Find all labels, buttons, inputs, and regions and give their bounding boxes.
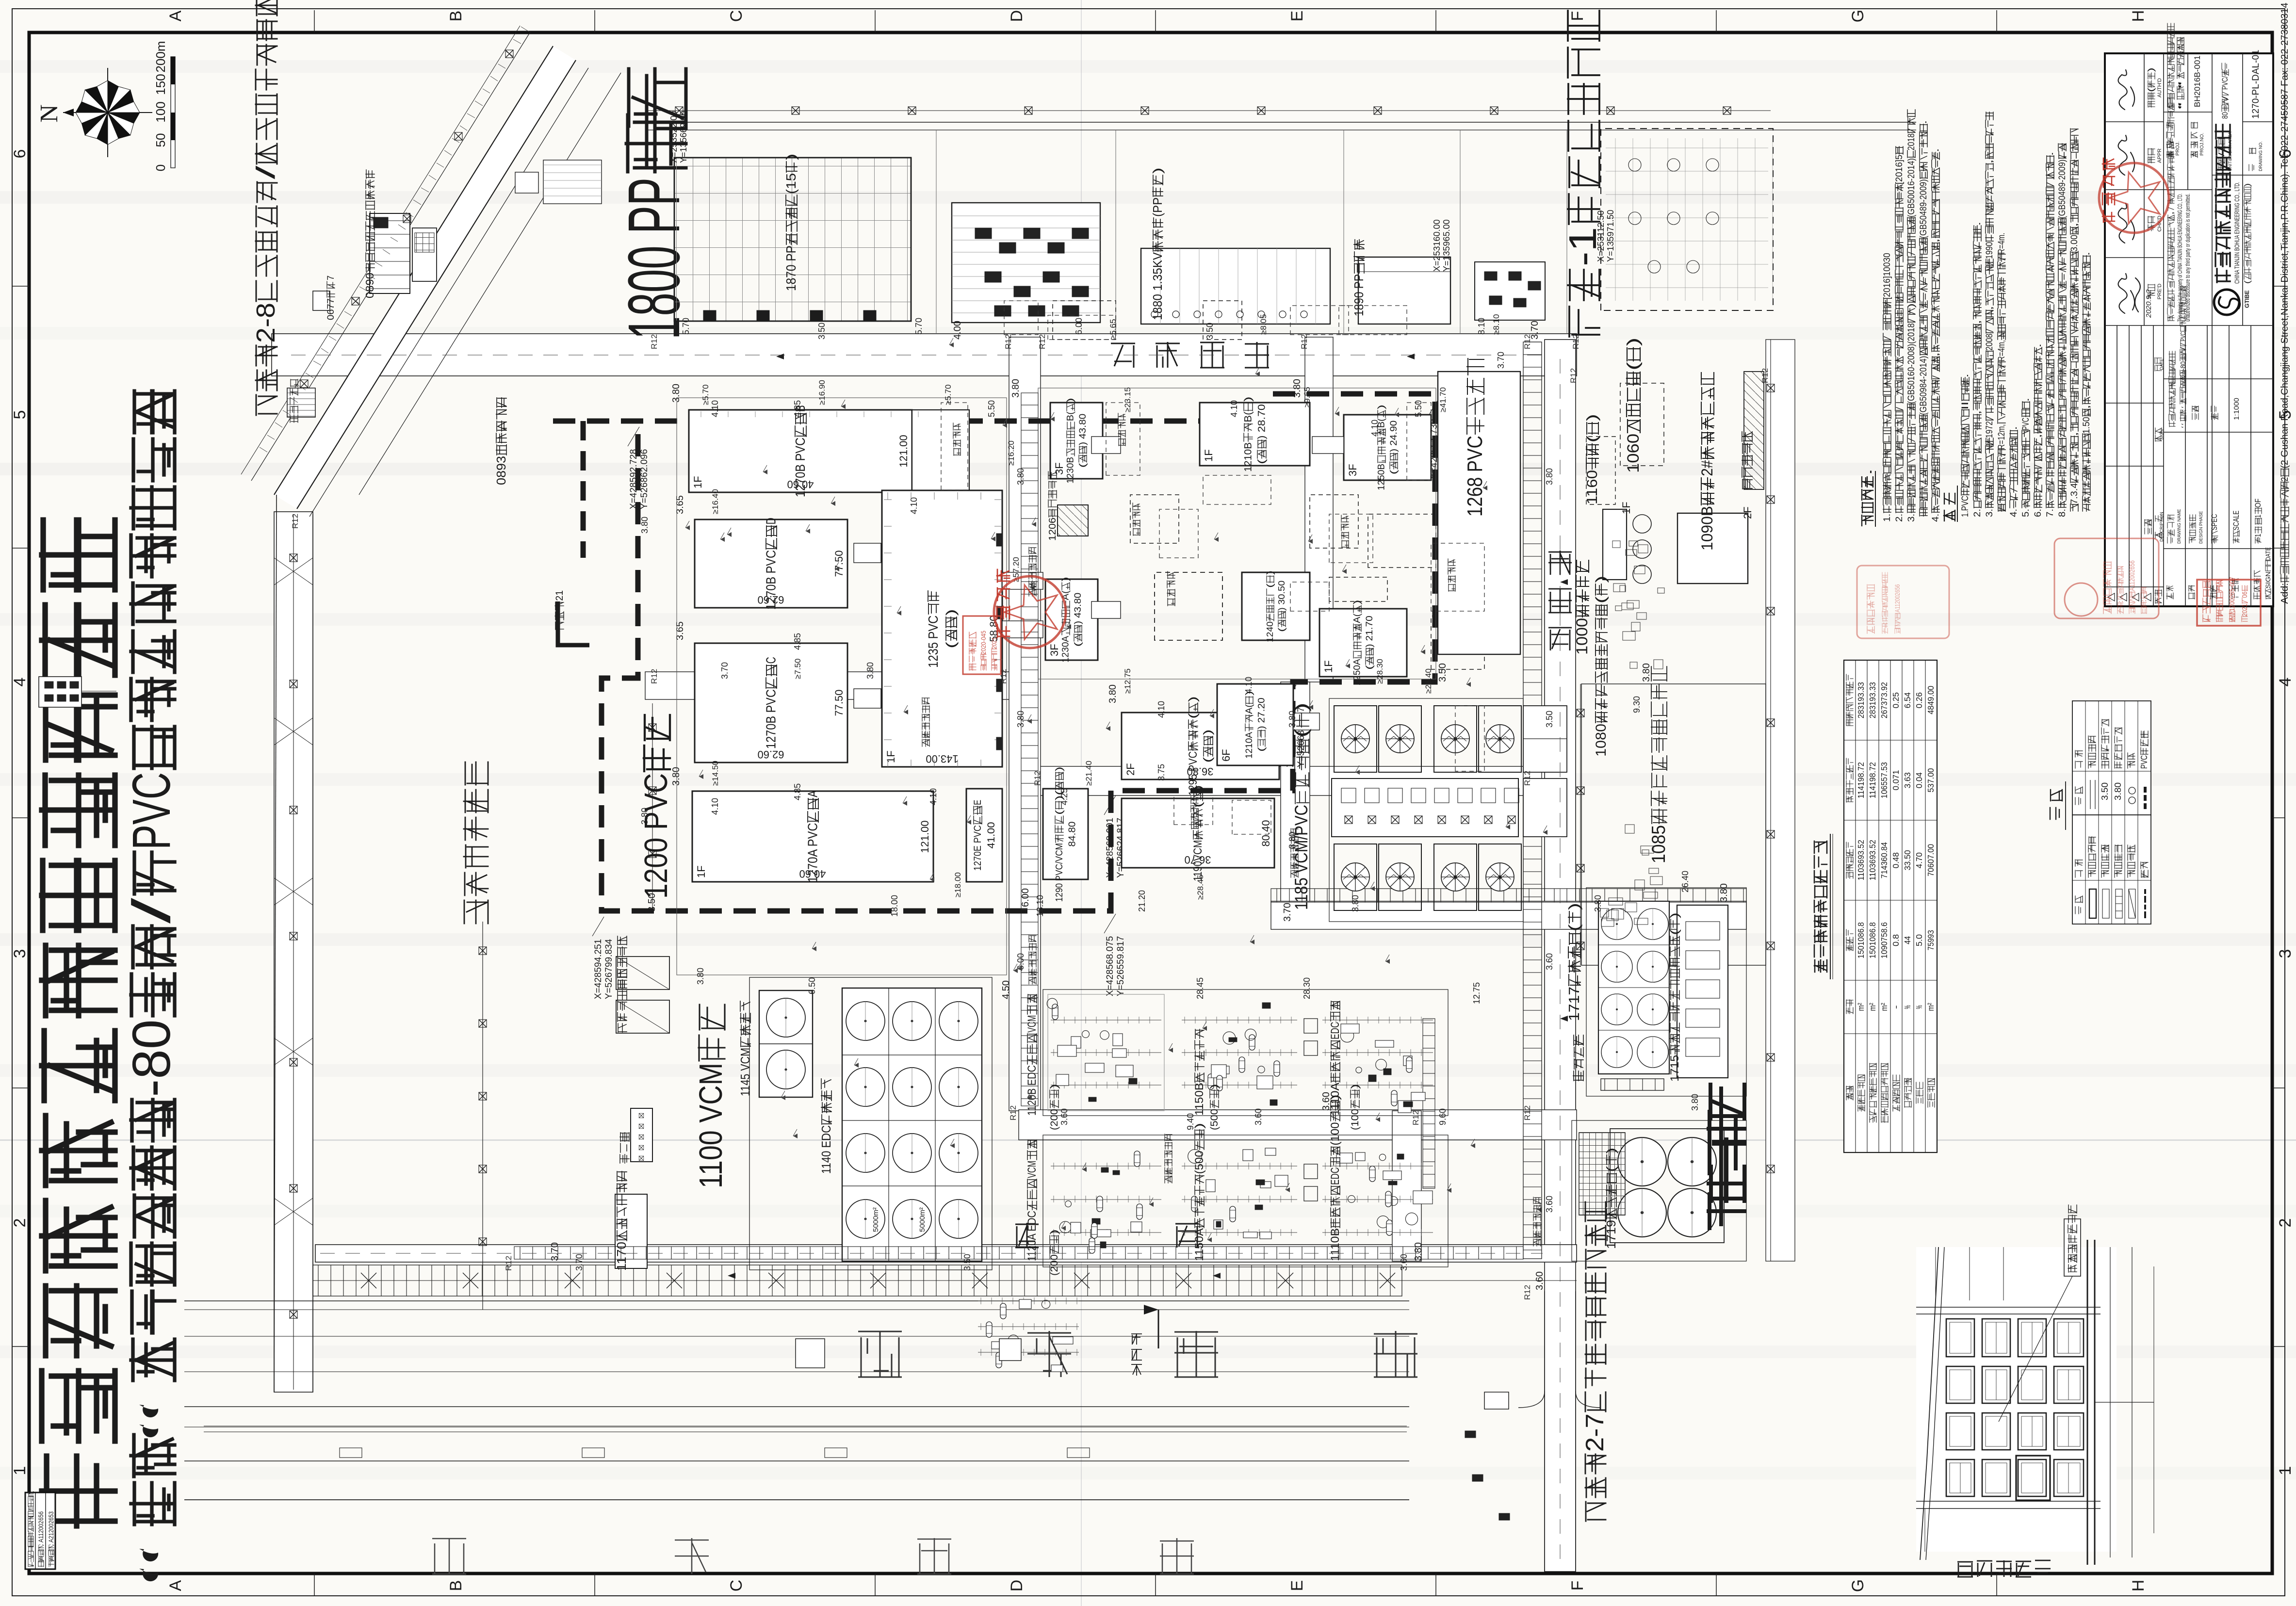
svg-text:50: 50 bbox=[153, 133, 168, 147]
svg-text:≥9.65: ≥9.65 bbox=[1303, 387, 1312, 407]
svg-text:II: II bbox=[1960, 402, 1970, 410]
svg-text:≥5.70: ≥5.70 bbox=[944, 385, 953, 405]
svg-text:) 24.90: ) 24.90 bbox=[1388, 421, 1399, 452]
svg-text:SIGN: SIGN bbox=[2159, 429, 2164, 440]
svg-text:4.70: 4.70 bbox=[1914, 852, 1924, 868]
svg-text:,: , bbox=[2069, 223, 2080, 227]
svg-text:≥14.50: ≥14.50 bbox=[711, 761, 720, 786]
svg-text:PVC: PVC bbox=[2139, 755, 2149, 769]
svg-text:B: B bbox=[447, 1580, 465, 1591]
svg-text:150: 150 bbox=[153, 74, 168, 95]
svg-text:4.: 4. bbox=[1930, 514, 1941, 522]
svg-text:3.80: 3.80 bbox=[671, 384, 682, 403]
svg-text:,: , bbox=[1972, 410, 1983, 415]
svg-text:5.70: 5.70 bbox=[681, 318, 691, 335]
svg-text:3.60: 3.60 bbox=[1534, 1271, 1545, 1290]
svg-text:CHINA TIANJIN BOHUA ENGINEERIN: CHINA TIANJIN BOHUA ENGINEERING CO., LTD… bbox=[2233, 182, 2241, 284]
svg-text:3.80: 3.80 bbox=[865, 662, 875, 679]
svg-text:.: . bbox=[1960, 373, 1970, 378]
svg-text:R12: R12 bbox=[1523, 1105, 1532, 1120]
svg-text:2F: 2F bbox=[1124, 763, 1137, 776]
svg-text:70607.00: 70607.00 bbox=[1926, 844, 1936, 876]
svg-text:) 21.70: ) 21.70 bbox=[1364, 616, 1375, 647]
svg-text:PVC: PVC bbox=[2020, 418, 2031, 430]
svg-text:UNIT&WORK AREA: UNIT&WORK AREA bbox=[2228, 131, 2232, 171]
svg-text:4: 4 bbox=[2276, 678, 2295, 687]
svg-text:28.45: 28.45 bbox=[1195, 977, 1205, 999]
svg-text:≥8.05: ≥8.05 bbox=[1259, 314, 1268, 335]
svg-text:40.60: 40.60 bbox=[799, 868, 826, 880]
svg-text:283193.33: 283193.33 bbox=[1856, 682, 1866, 718]
svg-text:1F: 1F bbox=[1322, 660, 1335, 673]
svg-text:PVC: PVC bbox=[2179, 332, 2187, 341]
svg-text:) 28.70: ) 28.70 bbox=[1255, 404, 1268, 439]
svg-text:0890: 0890 bbox=[363, 273, 376, 298]
svg-text:R12: R12 bbox=[1009, 1105, 1018, 1120]
svg-text:3.63: 3.63 bbox=[1903, 772, 1912, 788]
svg-text:1715: 1715 bbox=[1668, 1055, 1681, 1082]
svg-text:C: C bbox=[764, 657, 779, 664]
svg-text:6.: 6. bbox=[2033, 509, 2043, 517]
svg-text:): ) bbox=[1352, 600, 1363, 605]
svg-text:1501086.8: 1501086.8 bbox=[1856, 922, 1866, 958]
svg-text:SPEC: SPEC bbox=[2210, 514, 2219, 530]
svg-text:3.65: 3.65 bbox=[675, 621, 685, 640]
svg-text:): ) bbox=[1054, 766, 1065, 771]
svg-text:R12: R12 bbox=[1571, 334, 1580, 349]
svg-text:(: ( bbox=[1265, 583, 1275, 588]
svg-text:.: . bbox=[2008, 426, 2019, 430]
svg-text:1145 VCM: 1145 VCM bbox=[739, 1048, 752, 1096]
svg-text:) 27.20: ) 27.20 bbox=[1256, 698, 1267, 729]
svg-text:36.80: 36.80 bbox=[1187, 765, 1213, 778]
svg-text:3.80: 3.80 bbox=[1107, 684, 1118, 703]
svg-text:APPR: APPR bbox=[2157, 148, 2163, 163]
svg-text:AUTH'D: AUTH'D bbox=[2157, 78, 2163, 97]
svg-text:4.85: 4.85 bbox=[793, 783, 802, 800]
svg-text:/: / bbox=[122, 897, 181, 924]
svg-text:m²: m² bbox=[1856, 1003, 1866, 1011]
svg-text:/: / bbox=[2217, 152, 2226, 157]
svg-text:,: , bbox=[2081, 405, 2092, 409]
svg-text:SCALE: SCALE bbox=[2232, 510, 2241, 530]
svg-text:): ) bbox=[1668, 912, 1681, 918]
svg-text:.: . bbox=[1918, 120, 1929, 124]
svg-text:) 30.50: ) 30.50 bbox=[1276, 581, 1286, 611]
svg-text:R12: R12 bbox=[650, 334, 659, 349]
svg-text:≥21.40: ≥21.40 bbox=[1084, 761, 1093, 786]
svg-text:): ) bbox=[1349, 1084, 1361, 1089]
svg-text:-80: -80 bbox=[122, 1020, 181, 1097]
svg-text:,: , bbox=[1972, 320, 1983, 324]
svg-text:C: C bbox=[727, 10, 746, 22]
svg-text:R12: R12 bbox=[504, 1256, 513, 1271]
svg-text:41.00: 41.00 bbox=[985, 822, 997, 849]
svg-text:3.60: 3.60 bbox=[1254, 1108, 1263, 1125]
svg-text:4.10: 4.10 bbox=[1244, 677, 1254, 694]
svg-text:(: ( bbox=[1256, 746, 1267, 752]
svg-text:): ) bbox=[1376, 405, 1387, 409]
svg-text:≥7.50: ≥7.50 bbox=[793, 659, 802, 679]
svg-text:DESIGN PHASE: DESIGN PHASE bbox=[2198, 511, 2203, 544]
svg-text:4849.00: 4849.00 bbox=[1926, 686, 1936, 714]
svg-text:1270B PVC: 1270B PVC bbox=[764, 689, 779, 749]
svg-text:5.: 5. bbox=[2020, 509, 2031, 517]
svg-text:4.25: 4.25 bbox=[1059, 788, 1069, 805]
svg-text:.: . bbox=[1972, 222, 1983, 226]
svg-text:2: 2 bbox=[2279, 477, 2290, 482]
svg-text:R12: R12 bbox=[1033, 771, 1042, 786]
svg-text:18.10: 18.10 bbox=[1035, 895, 1045, 917]
svg-text:9.30: 9.30 bbox=[1632, 696, 1642, 713]
svg-text:X=253160.00: X=253160.00 bbox=[1432, 219, 1442, 272]
svg-text:R=4m,: R=4m, bbox=[1996, 340, 2007, 361]
svg-text:3.80: 3.80 bbox=[2113, 782, 2123, 800]
svg-text:0.8: 0.8 bbox=[1891, 934, 1901, 946]
svg-text:1.PVC: 1.PVC bbox=[1960, 496, 1970, 517]
svg-text:1890 PP: 1890 PP bbox=[1352, 274, 1366, 316]
svg-text:.: . bbox=[2020, 398, 2031, 402]
svg-text:≥23.15: ≥23.15 bbox=[1123, 387, 1132, 412]
svg-text:): ) bbox=[2146, 67, 2156, 72]
svg-text:PROJ.: PROJ. bbox=[2175, 142, 2181, 156]
svg-text:18.00: 18.00 bbox=[890, 895, 899, 917]
svg-text:1060: 1060 bbox=[1624, 434, 1643, 473]
svg-text:PROJ.NO.: PROJ.NO. bbox=[2199, 133, 2205, 156]
svg-text:): ) bbox=[1151, 167, 1165, 174]
svg-text:1100 VCM: 1100 VCM bbox=[693, 1063, 729, 1188]
svg-text:3.80: 3.80 bbox=[640, 517, 650, 534]
svg-text:A(: A( bbox=[1244, 704, 1254, 714]
svg-text:B(: B( bbox=[1242, 411, 1254, 422]
svg-text:6.00: 6.00 bbox=[1074, 318, 1084, 335]
svg-text:H: H bbox=[2129, 10, 2148, 22]
svg-text:0.04: 0.04 bbox=[1914, 772, 1924, 788]
svg-text:,: , bbox=[1930, 239, 1941, 243]
svg-text:1080: 1080 bbox=[1594, 724, 1609, 757]
svg-text:26.40: 26.40 bbox=[1680, 871, 1690, 892]
svg-text:F: F bbox=[1568, 11, 1587, 21]
svg-text:Y=526862.096: Y=526862.096 bbox=[639, 449, 650, 509]
svg-text:(: ( bbox=[1202, 757, 1215, 762]
svg-text:1160: 1160 bbox=[1584, 470, 1600, 504]
svg-text:≥18.00: ≥18.00 bbox=[953, 872, 962, 897]
svg-text:4.10: 4.10 bbox=[928, 788, 938, 805]
svg-text:,: , bbox=[1930, 352, 1941, 357]
svg-text:3.50: 3.50 bbox=[1545, 711, 1554, 728]
svg-text:4.50: 4.50 bbox=[1001, 980, 1011, 999]
svg-text:(GB50489-2009): (GB50489-2009) bbox=[1918, 179, 1929, 239]
svg-text:m²: m² bbox=[1879, 1003, 1889, 1011]
svg-text:DATE: DATE bbox=[2264, 547, 2272, 561]
svg-text:3.80: 3.80 bbox=[671, 767, 682, 786]
svg-text:D: D bbox=[1008, 1580, 1026, 1592]
svg-text:H: H bbox=[2129, 1580, 2148, 1592]
svg-text:Add:: Add: bbox=[2279, 583, 2290, 604]
svg-text:≥16.90: ≥16.90 bbox=[817, 380, 827, 405]
svg-text:) 43.80: ) 43.80 bbox=[1077, 414, 1088, 445]
svg-text:(: ( bbox=[1566, 924, 1582, 931]
svg-text:84.80: 84.80 bbox=[1066, 822, 1077, 847]
svg-text:(15: (15 bbox=[783, 173, 798, 194]
svg-text:X=253112.50: X=253112.50 bbox=[1596, 211, 1606, 262]
svg-text:21.20: 21.20 bbox=[1137, 890, 1147, 912]
svg-text:X=428594.251: X=428594.251 bbox=[593, 939, 603, 999]
svg-text:2-7: 2-7 bbox=[1580, 1413, 1609, 1452]
svg-text:3.50: 3.50 bbox=[817, 323, 827, 340]
svg-text:): ) bbox=[943, 609, 958, 616]
svg-text:): ) bbox=[1594, 576, 1609, 583]
svg-text:R12: R12 bbox=[1760, 368, 1770, 383]
svg-text:): ) bbox=[1265, 570, 1275, 575]
svg-text:5000m²: 5000m² bbox=[872, 1207, 880, 1232]
svg-text:1210B: 1210B bbox=[1242, 442, 1254, 472]
svg-text:1719: 1719 bbox=[1605, 1220, 1618, 1249]
svg-text:D: D bbox=[1008, 10, 1026, 22]
svg-text:(: ( bbox=[1388, 470, 1399, 475]
svg-text:4.10: 4.10 bbox=[1370, 420, 1380, 437]
svg-text:4: 4 bbox=[11, 678, 29, 687]
svg-text:4.10: 4.10 bbox=[909, 497, 919, 514]
svg-text:121.00: 121.00 bbox=[919, 820, 931, 853]
svg-text:): ) bbox=[1906, 304, 1917, 308]
svg-text:,: , bbox=[1984, 306, 1995, 310]
svg-text:(GB50984-2014): (GB50984-2014) bbox=[1918, 356, 1929, 415]
svg-text:2018: 2018 bbox=[1906, 133, 1917, 150]
svg-text:1090B: 1090B bbox=[1698, 506, 1716, 551]
svg-text:E: E bbox=[1288, 11, 1306, 22]
svg-text:≥12.75: ≥12.75 bbox=[1123, 668, 1132, 694]
svg-text:8.: 8. bbox=[2057, 509, 2068, 517]
svg-text:%: % bbox=[1903, 1005, 1912, 1009]
svg-text:4.10: 4.10 bbox=[710, 400, 720, 417]
svg-text:≥16.40: ≥16.40 bbox=[711, 489, 720, 514]
svg-text:3.80: 3.80 bbox=[1545, 468, 1554, 485]
svg-text:PVC/: PVC/ bbox=[2221, 76, 2230, 90]
svg-text:3: 3 bbox=[2276, 949, 2295, 958]
svg-text:(: ( bbox=[1624, 361, 1643, 371]
svg-text:unauthorized disclosure to any: unauthorized disclosure to any third par… bbox=[2184, 194, 2191, 322]
svg-text:m²: m² bbox=[1926, 1003, 1936, 1011]
svg-text:2: 2 bbox=[2276, 1218, 2295, 1228]
svg-text:X=428568.001: X=428568.001 bbox=[1105, 818, 1115, 878]
svg-text:06: 06 bbox=[2241, 592, 2249, 598]
svg-text:1F: 1F bbox=[1620, 502, 1632, 514]
svg-text:1F: 1F bbox=[692, 476, 704, 488]
svg-text:3.70: 3.70 bbox=[574, 1254, 584, 1271]
svg-text:EDC: EDC bbox=[1329, 1168, 1342, 1185]
svg-text:537.00: 537.00 bbox=[1926, 768, 1936, 793]
svg-text:1717: 1717 bbox=[1566, 987, 1582, 1021]
svg-text:): ) bbox=[1242, 396, 1254, 402]
svg-text:1.50: 1.50 bbox=[2081, 417, 2092, 434]
svg-text:1F: 1F bbox=[1203, 449, 1215, 462]
svg-text:.: . bbox=[1859, 469, 1874, 475]
svg-text:3.50: 3.50 bbox=[962, 1254, 972, 1271]
svg-text:1270E PVC: 1270E PVC bbox=[971, 825, 983, 871]
svg-text:[2016]10030: [2016]10030 bbox=[1882, 253, 1892, 299]
svg-text:DRAWING NO.: DRAWING NO. bbox=[2258, 141, 2263, 171]
svg-text:Y=135669.00: Y=135669.00 bbox=[679, 111, 688, 163]
svg-text:R12: R12 bbox=[1300, 334, 1309, 349]
svg-text:6.54: 6.54 bbox=[1903, 692, 1912, 708]
svg-text:PRE'D: PRE'D bbox=[2157, 284, 2163, 300]
svg-text:80.40: 80.40 bbox=[1260, 820, 1272, 846]
svg-text:R12: R12 bbox=[291, 514, 300, 529]
svg-text:4.85: 4.85 bbox=[793, 633, 802, 650]
svg-text:80: 80 bbox=[2221, 112, 2230, 119]
svg-text:1235 PVC: 1235 PVC bbox=[926, 616, 941, 668]
svg-text:m²: m² bbox=[1868, 1003, 1877, 1011]
svg-text:100: 100 bbox=[153, 101, 168, 122]
svg-text:1F: 1F bbox=[885, 750, 897, 763]
svg-text:X=428568.075: X=428568.075 bbox=[1105, 936, 1115, 996]
svg-text:(100: (100 bbox=[1329, 1122, 1342, 1146]
svg-text:6: 6 bbox=[11, 149, 29, 159]
svg-text:2021: 2021 bbox=[2241, 604, 2249, 616]
svg-text:,: , bbox=[2069, 432, 2080, 436]
svg-text:2008: 2008 bbox=[1984, 334, 1995, 351]
svg-text:): ) bbox=[1048, 1229, 1060, 1234]
svg-text:3.50: 3.50 bbox=[1437, 663, 1448, 682]
svg-text:0.48: 0.48 bbox=[1891, 852, 1901, 868]
svg-text:40.60: 40.60 bbox=[787, 478, 814, 490]
svg-text:3.50: 3.50 bbox=[2100, 782, 2110, 800]
svg-text:3.80: 3.80 bbox=[1593, 895, 1603, 912]
svg-text:1F: 1F bbox=[695, 865, 707, 878]
svg-text:7.3.4: 7.3.4 bbox=[2069, 483, 2080, 504]
svg-text:5.70: 5.70 bbox=[914, 318, 924, 335]
svg-text:36.70: 36.70 bbox=[1184, 854, 1211, 866]
svg-text:2-8: 2-8 bbox=[251, 303, 280, 343]
svg-text:62.60: 62.60 bbox=[757, 594, 784, 606]
svg-text:(500: (500 bbox=[1208, 1109, 1220, 1130]
svg-text:): ) bbox=[1202, 730, 1215, 735]
svg-text:0.071: 0.071 bbox=[1891, 770, 1901, 790]
svg-text:≥28.45: ≥28.45 bbox=[1196, 875, 1205, 900]
svg-text:/: / bbox=[2179, 346, 2187, 350]
svg-text:R=12m,: R=12m, bbox=[1996, 424, 2007, 450]
svg-text:(GB50489-2009): (GB50489-2009) bbox=[2057, 160, 2068, 219]
svg-text:VCM: VCM bbox=[1026, 1161, 1039, 1178]
svg-text:1210A: 1210A bbox=[1244, 732, 1254, 759]
svg-text:≥28.30: ≥28.30 bbox=[1375, 659, 1384, 684]
svg-text:0.26: 0.26 bbox=[1914, 692, 1924, 708]
svg-text:≥16.20: ≥16.20 bbox=[1007, 440, 1016, 466]
svg-text:/: / bbox=[251, 166, 280, 179]
svg-text:≥41.70: ≥41.70 bbox=[1438, 387, 1448, 412]
svg-text:9.40: 9.40 bbox=[1186, 1113, 1195, 1130]
svg-text:3.65: 3.65 bbox=[675, 495, 685, 514]
svg-text:-80: -80 bbox=[2179, 361, 2187, 371]
svg-text:≥8.10: ≥8.10 bbox=[1492, 314, 1501, 335]
svg-text:3.80: 3.80 bbox=[1641, 663, 1652, 682]
svg-text:143.00: 143.00 bbox=[926, 753, 958, 765]
svg-text:33.50: 33.50 bbox=[1903, 850, 1912, 870]
svg-text:0677: 0677 bbox=[326, 298, 336, 320]
svg-text:): ) bbox=[783, 153, 798, 160]
svg-text:): ) bbox=[1060, 577, 1071, 582]
svg-text:7.: 7. bbox=[2045, 509, 2055, 517]
svg-text:B(: B( bbox=[1065, 411, 1076, 422]
svg-text:12.75: 12.75 bbox=[1472, 982, 1482, 1004]
svg-text:(: ( bbox=[1276, 627, 1286, 632]
svg-text:A: A bbox=[805, 791, 820, 797]
svg-text:3.00: 3.00 bbox=[2069, 235, 2080, 252]
svg-text:1103693.52: 1103693.52 bbox=[1868, 840, 1877, 880]
svg-text:R12: R12 bbox=[1038, 334, 1047, 349]
svg-text:DRAWING NAME: DRAWING NAME bbox=[2177, 509, 2182, 544]
svg-text:114198.72: 114198.72 bbox=[1856, 762, 1866, 798]
svg-text:≥5.65: ≥5.65 bbox=[1108, 319, 1118, 340]
svg-text:Y=526799.834: Y=526799.834 bbox=[604, 939, 614, 999]
svg-text:≥5.70: ≥5.70 bbox=[701, 385, 710, 405]
svg-text:3.60: 3.60 bbox=[1545, 1196, 1554, 1213]
svg-text:3.: 3. bbox=[1984, 509, 1995, 517]
svg-text:,: , bbox=[2166, 211, 2175, 215]
svg-text:1140 EDC: 1140 EDC bbox=[820, 1125, 833, 1174]
svg-text::A112002656: :A112002656 bbox=[2128, 560, 2136, 592]
svg-text:1: 1 bbox=[2276, 1466, 2295, 1476]
svg-text:): ) bbox=[1208, 1084, 1220, 1089]
svg-text:9.60: 9.60 bbox=[1438, 1108, 1448, 1125]
svg-text:1.: 1. bbox=[1882, 514, 1892, 522]
svg-text:Y=135965.00: Y=135965.00 bbox=[1442, 219, 1451, 272]
svg-text:): ) bbox=[1566, 903, 1582, 910]
svg-text:267373.92: 267373.92 bbox=[1879, 682, 1889, 718]
svg-text:3.80: 3.80 bbox=[640, 808, 650, 825]
svg-text:121.00: 121.00 bbox=[897, 435, 910, 467]
svg-text:3.60: 3.60 bbox=[1545, 953, 1554, 970]
svg-text:4.10: 4.10 bbox=[1229, 400, 1239, 417]
svg-text:/: / bbox=[2221, 96, 2230, 99]
svg-text:3.80: 3.80 bbox=[1016, 468, 1026, 485]
svg-text:[2016]5: [2016]5 bbox=[1894, 155, 1905, 184]
svg-text:): ) bbox=[1048, 1084, 1060, 1089]
svg-text:(: ( bbox=[1291, 729, 1311, 738]
svg-text:4.00: 4.00 bbox=[952, 321, 963, 340]
svg-text:283193.33: 283193.33 bbox=[1868, 682, 1877, 718]
svg-text:77.50: 77.50 bbox=[833, 550, 845, 577]
svg-text::: : bbox=[1881, 622, 1889, 624]
svg-text:(: ( bbox=[1073, 642, 1083, 647]
svg-text:3.80: 3.80 bbox=[696, 968, 705, 985]
svg-text:3.70: 3.70 bbox=[1496, 352, 1506, 369]
svg-text:.: . bbox=[2033, 343, 2043, 348]
svg-text:21: 21 bbox=[553, 590, 565, 601]
svg-text:(: ( bbox=[1668, 929, 1681, 935]
svg-text:1090758.6: 1090758.6 bbox=[1879, 922, 1889, 958]
svg-text:B: B bbox=[447, 11, 465, 22]
svg-text:3.70: 3.70 bbox=[720, 662, 730, 679]
svg-text:1250A: 1250A bbox=[1352, 659, 1363, 685]
svg-text:1: 1 bbox=[2254, 534, 2263, 537]
svg-text:2F: 2F bbox=[1742, 506, 1754, 519]
svg-text:): ) bbox=[2243, 183, 2252, 187]
svg-text::: : bbox=[2140, 599, 2148, 602]
svg-text:.: . bbox=[2045, 152, 2055, 156]
svg-text:2: 2 bbox=[11, 1218, 29, 1228]
svg-text:4.85: 4.85 bbox=[793, 400, 802, 417]
svg-text:3: 3 bbox=[11, 949, 29, 958]
svg-text:3.80: 3.80 bbox=[1010, 379, 1021, 398]
svg-text:1200265-007: 1200265-007 bbox=[2228, 577, 2236, 611]
svg-text:SIGN: SIGN bbox=[2264, 572, 2272, 589]
svg-text:2020-045: 2020-045 bbox=[979, 631, 987, 654]
svg-text:): ) bbox=[1584, 414, 1600, 421]
svg-text:1206: 1206 bbox=[1047, 518, 1058, 541]
svg-text:1: 1 bbox=[2254, 515, 2263, 518]
